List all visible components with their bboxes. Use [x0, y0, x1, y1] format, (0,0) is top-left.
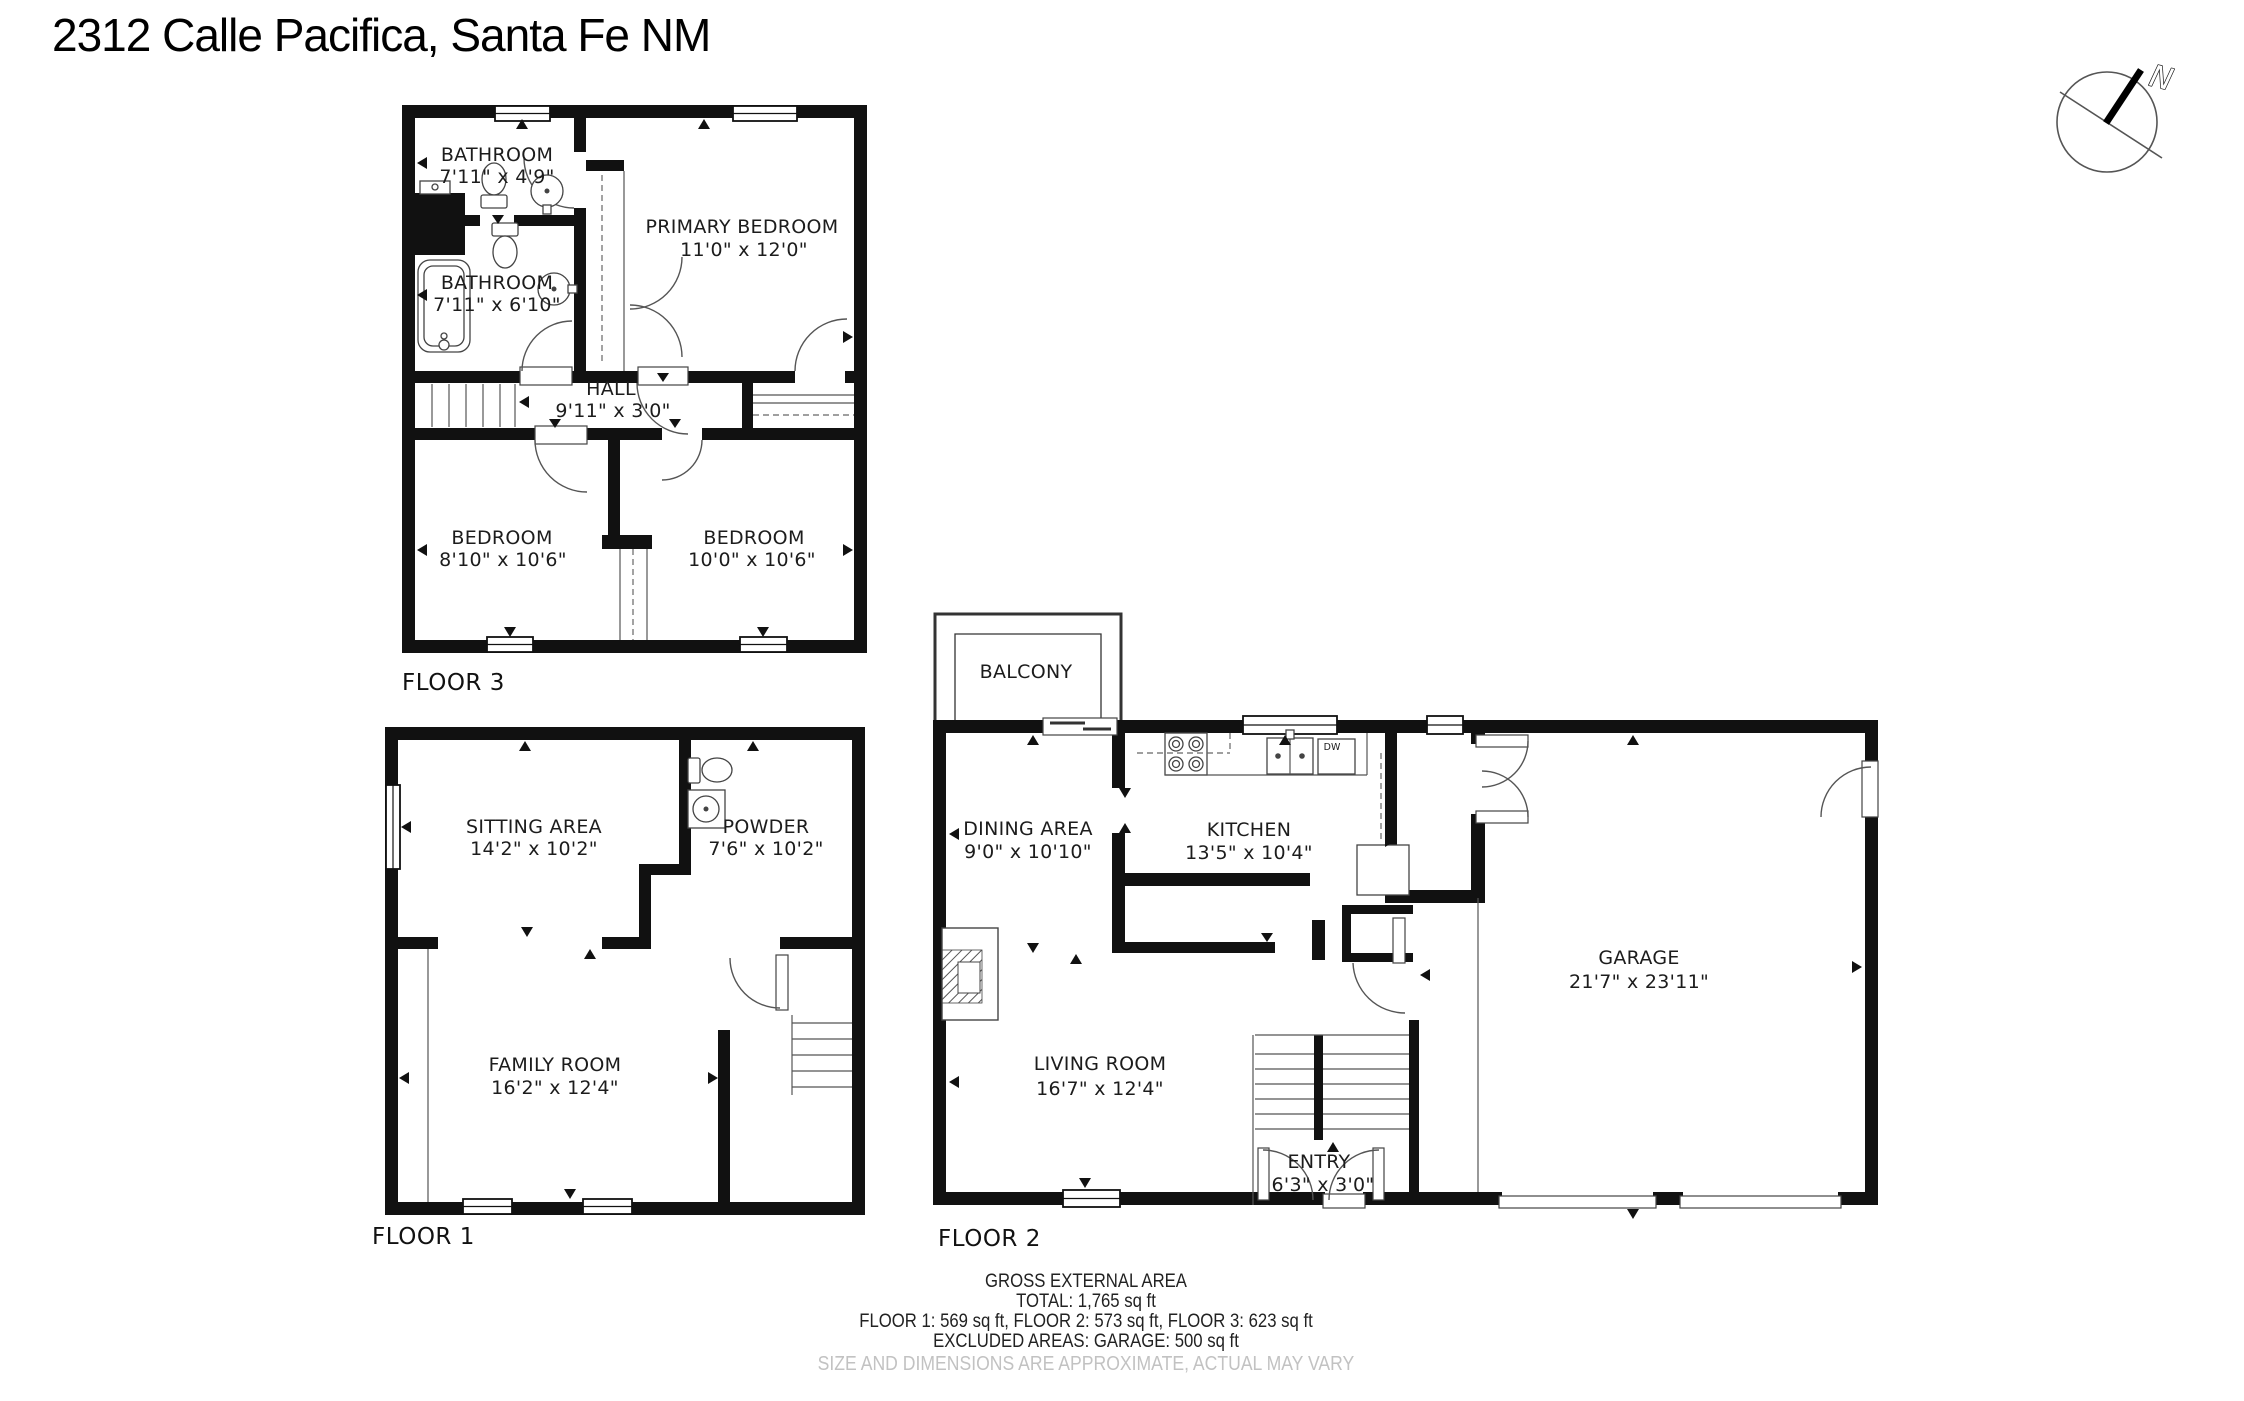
floor1-stairs-icon: [792, 1015, 852, 1095]
room-name-powder: POWDER: [723, 816, 810, 838]
room-dims-bathroom-bottom: 7'11" x 6'10": [433, 294, 561, 316]
room-name-kitchen: KITCHEN: [1207, 819, 1291, 841]
room-dims-bathroom-top: 7'11" x 4'9": [439, 166, 554, 188]
room-dims-kitchen: 13'5" x 10'4": [1185, 842, 1313, 864]
floor3-plan: BATHROOM 7'11" x 4'9" BATHROOM 7'11" x 6…: [402, 105, 867, 653]
floor3-label: FLOOR 3: [402, 670, 505, 696]
room-name-hall: HALL: [586, 378, 636, 400]
room-dims-living-room: 16'7" x 12'4": [1036, 1078, 1164, 1100]
floor2-openings: [1045, 720, 1878, 1205]
area-summary: GROSS EXTERNAL AREA TOTAL: 1,765 sq ft F…: [690, 1272, 1482, 1374]
room-name-garage: GARAGE: [1598, 947, 1679, 969]
floorplan-page: 2312 Calle Pacifica, Santa Fe NM N: [0, 0, 2244, 1401]
room-dims-primary-bedroom: 11'0" x 12'0": [680, 239, 808, 261]
area-summary-total: TOTAL: 1,765 sq ft: [690, 1292, 1482, 1312]
floor3-fixtures: [418, 163, 577, 352]
floor1-room-labels: SITTING AREA 14'2" x 10'2" POWDER 7'6" x…: [466, 816, 824, 1099]
room-dims-powder: 7'6" x 10'2": [708, 838, 823, 860]
room-name-bathroom-bottom: BATHROOM: [441, 272, 553, 294]
compass-needle: [2106, 70, 2141, 123]
kitchen-fixtures: DW: [1137, 730, 1409, 895]
sliding-door-icon: [1043, 718, 1117, 735]
compass-north-label: N: [2146, 59, 2177, 98]
room-name-bedroom-left: BEDROOM: [451, 527, 552, 549]
compass-icon: N: [2035, 50, 2185, 190]
room-name-primary-bedroom: PRIMARY BEDROOM: [646, 216, 839, 238]
pantry-icon: [1357, 845, 1409, 895]
toilet-tank-icon: [492, 223, 518, 236]
fireplace-icon: [942, 928, 998, 1020]
room-dims-dining-area: 9'0" x 10'10": [964, 841, 1092, 863]
page-title: 2312 Calle Pacifica, Santa Fe NM: [52, 8, 710, 62]
floor1-label: FLOOR 1: [372, 1224, 475, 1250]
room-name-bathroom-top: BATHROOM: [441, 144, 553, 166]
room-dims-family-room: 16'2" x 12'4": [491, 1077, 619, 1099]
room-dims-garage: 21'7" x 23'11": [1569, 971, 1709, 993]
compass-crossline: [2060, 92, 2162, 158]
floor2-doors: [1258, 735, 1878, 1200]
floor3-stairs-icon: [432, 384, 515, 427]
floor1-walls: [385, 727, 865, 1215]
toilet-tank-icon: [688, 758, 700, 783]
room-name-dining-area: DINING AREA: [963, 818, 1093, 840]
room-name-bedroom-right: BEDROOM: [703, 527, 804, 549]
toilet-tank-icon: [481, 195, 507, 208]
area-summary-disclaimer: SIZE AND DIMENSIONS ARE APPROXIMATE, ACT…: [690, 1354, 1482, 1374]
floor1-door: [730, 955, 788, 1010]
area-summary-excluded: EXCLUDED AREAS: GARAGE: 500 sq ft: [690, 1332, 1482, 1352]
toilet-icon: [493, 236, 517, 268]
toilet-icon: [702, 758, 732, 782]
room-dims-bedroom-left: 8'10" x 10'6": [439, 549, 567, 571]
room-dims-entry: 6'3" x 3'0": [1272, 1174, 1375, 1196]
room-name-entry: ENTRY: [1288, 1151, 1351, 1173]
floor1-plan: SITTING AREA 14'2" x 10'2" POWDER 7'6" x…: [385, 727, 865, 1215]
floor2-plan: DW: [933, 612, 1891, 1224]
room-dims-hall: 9'11" x 3'0": [555, 400, 670, 422]
floor2-label: FLOOR 2: [938, 1226, 1041, 1252]
room-dims-sitting-area: 14'2" x 10'2": [470, 838, 598, 860]
floor2-dimension-arrows: [949, 735, 1862, 1219]
room-name-living-room: LIVING ROOM: [1034, 1053, 1167, 1075]
area-summary-heading: GROSS EXTERNAL AREA: [690, 1272, 1482, 1292]
area-summary-floors: FLOOR 1: 569 sq ft, FLOOR 2: 573 sq ft, …: [690, 1312, 1482, 1332]
room-name-balcony: BALCONY: [980, 661, 1073, 683]
room-name-family-room: FAMILY ROOM: [489, 1054, 622, 1076]
room-name-sitting-area: SITTING AREA: [466, 816, 602, 838]
room-dims-bedroom-right: 10'0" x 10'6": [688, 549, 816, 571]
dishwasher-label: DW: [1324, 742, 1341, 753]
